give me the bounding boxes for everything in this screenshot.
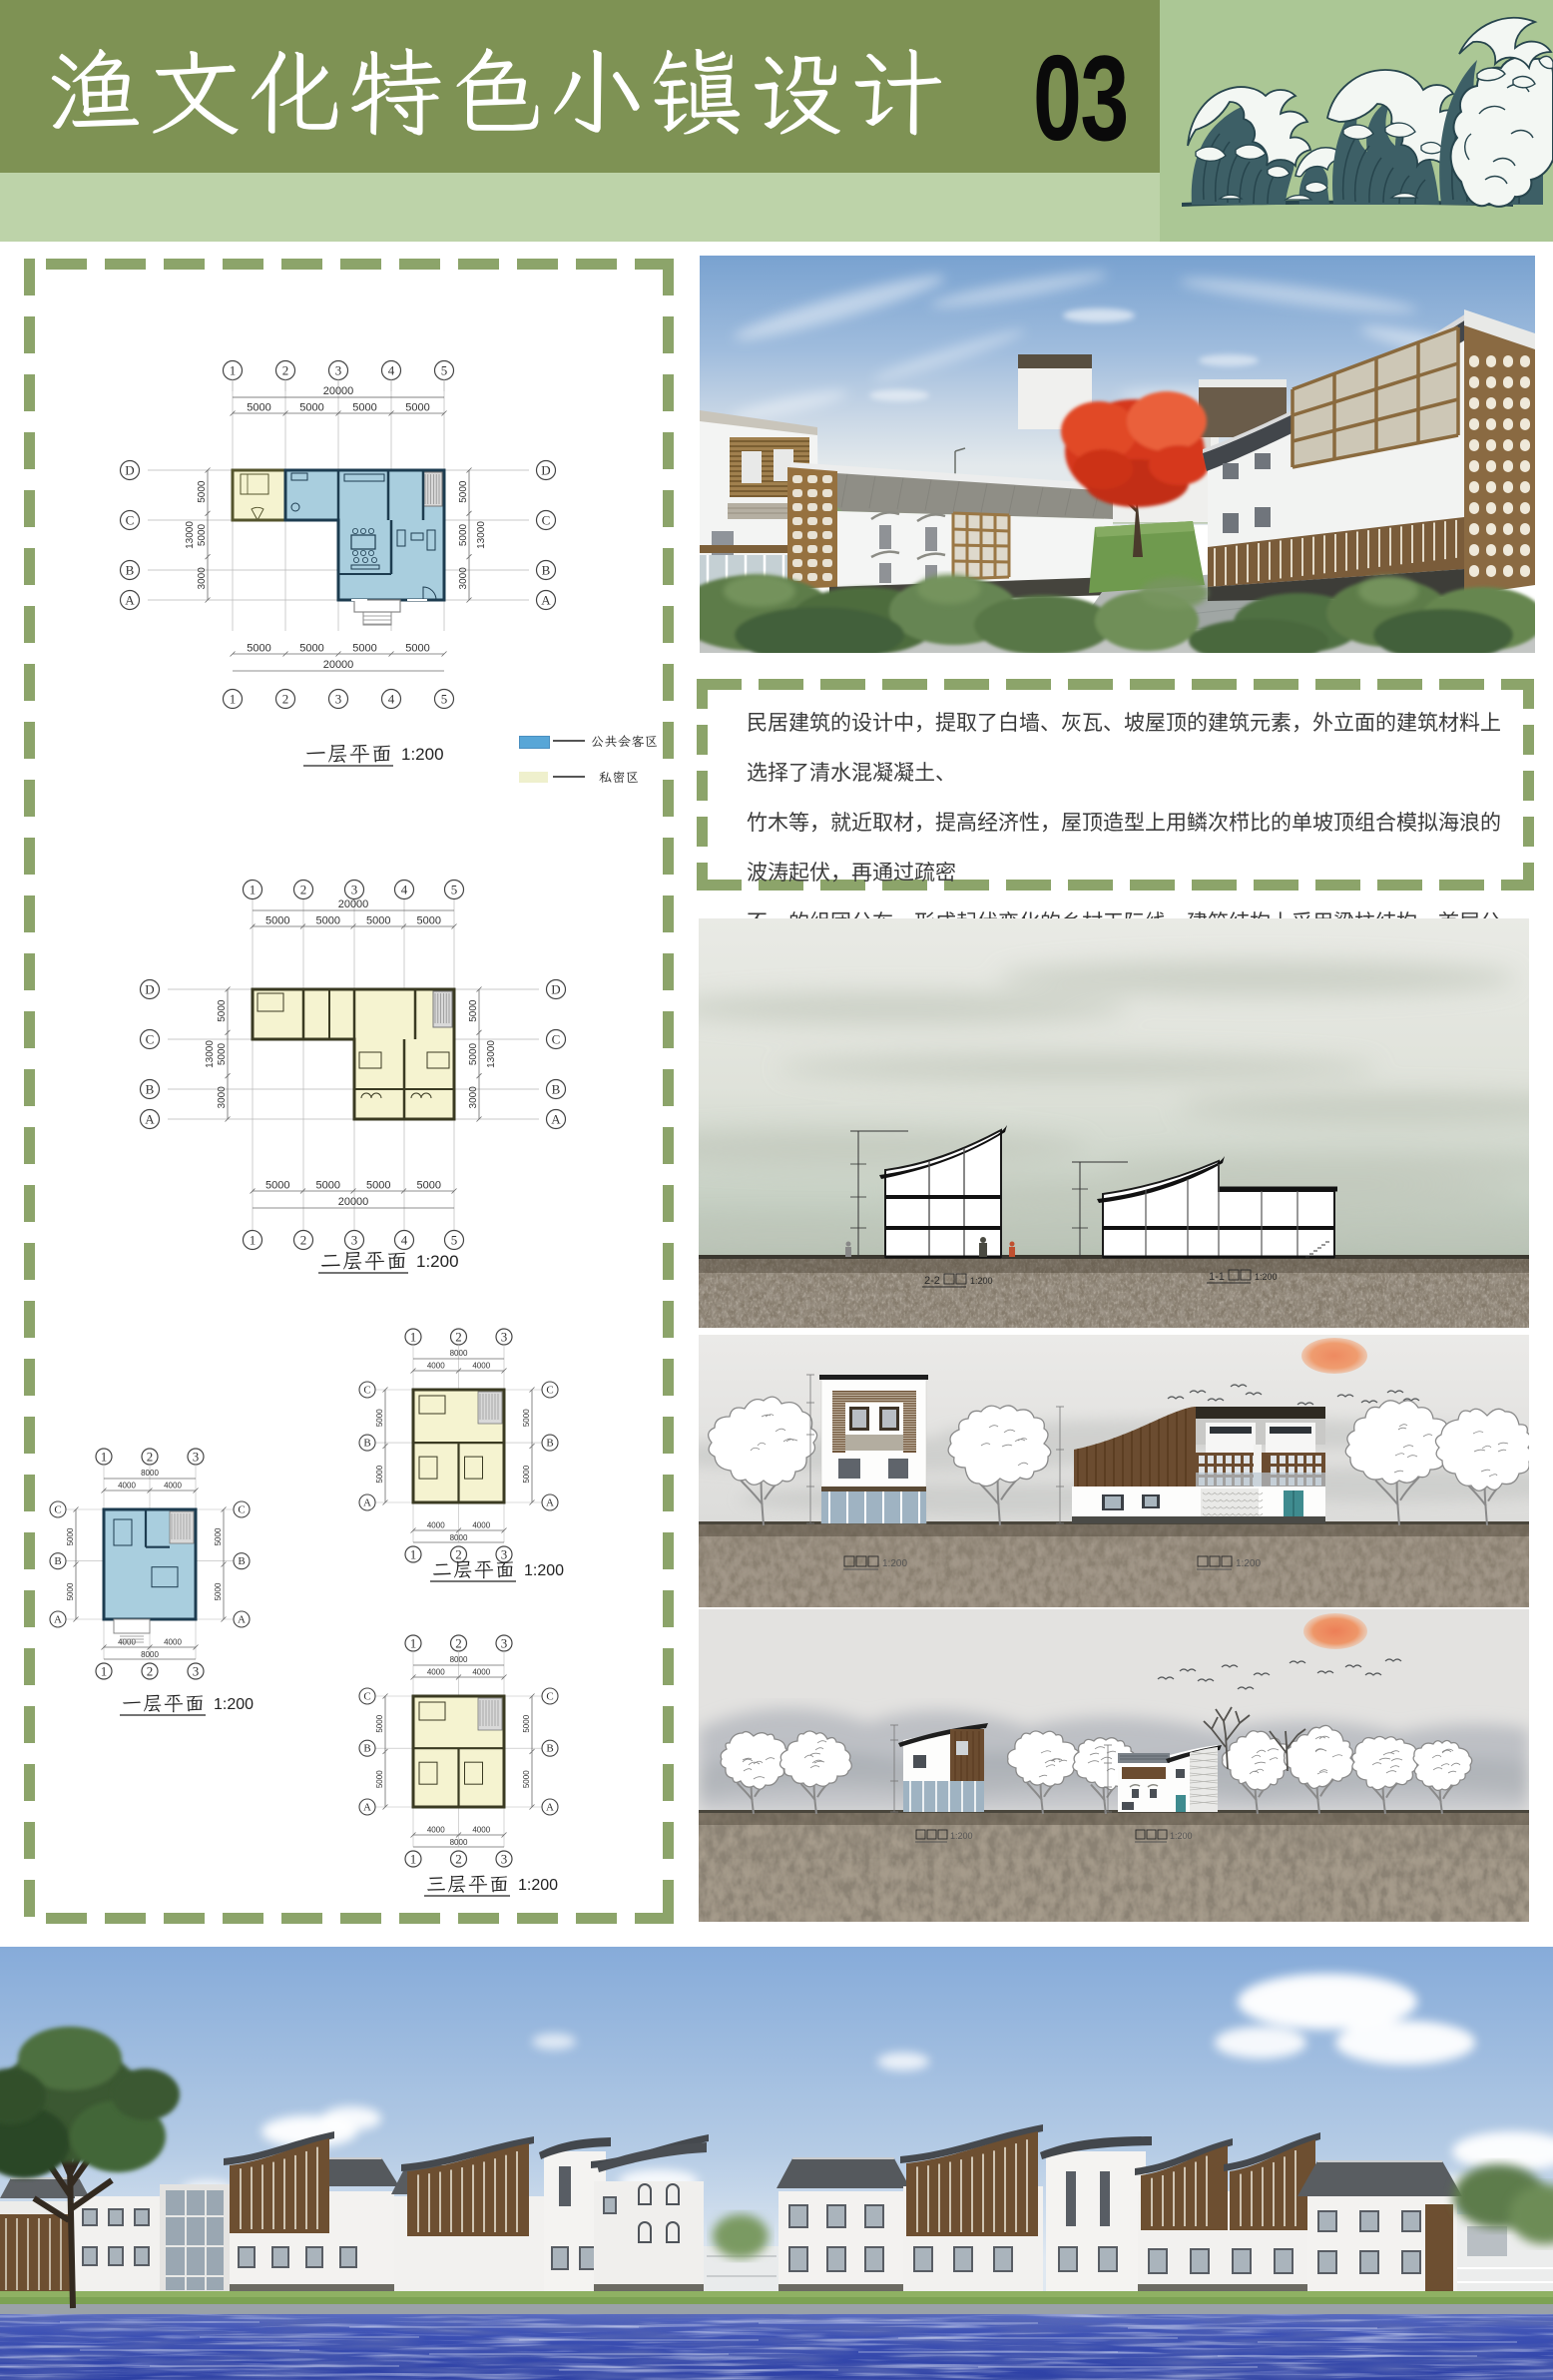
svg-text:1: 1 — [230, 692, 237, 707]
svg-text:C: C — [546, 1691, 553, 1703]
svg-text:4000: 4000 — [472, 1521, 490, 1530]
svg-text:1: 1 — [410, 1852, 417, 1867]
svg-text:5000: 5000 — [468, 999, 479, 1022]
svg-text:A: A — [551, 1112, 561, 1127]
svg-text:3: 3 — [193, 1450, 200, 1465]
svg-text:2: 2 — [455, 1330, 462, 1345]
svg-text:20000: 20000 — [323, 659, 354, 671]
svg-text:3000: 3000 — [458, 567, 469, 590]
svg-text:D: D — [125, 463, 134, 478]
svg-text:B: B — [126, 563, 135, 578]
svg-text:2: 2 — [455, 1547, 462, 1562]
svg-text:4000: 4000 — [164, 1638, 182, 1647]
svg-text:A: A — [238, 1614, 246, 1626]
svg-text:A: A — [125, 593, 135, 608]
svg-text:A: A — [145, 1112, 155, 1127]
svg-text:5000: 5000 — [247, 402, 270, 414]
svg-text:C: C — [552, 1032, 561, 1047]
svg-text:3: 3 — [335, 692, 342, 707]
svg-text:13000: 13000 — [486, 1040, 497, 1068]
svg-text:8000: 8000 — [450, 1349, 468, 1358]
svg-text:2: 2 — [282, 363, 289, 378]
svg-text:5000: 5000 — [375, 1770, 384, 1788]
svg-text:5000: 5000 — [352, 402, 376, 414]
svg-text:4: 4 — [388, 363, 395, 378]
svg-text:1: 1 — [410, 1547, 417, 1562]
svg-text:B: B — [146, 1082, 155, 1097]
svg-text:1:200: 1:200 — [1236, 1558, 1261, 1569]
svg-text:D: D — [541, 463, 550, 478]
svg-text:B: B — [546, 1438, 553, 1450]
svg-text:5: 5 — [441, 363, 448, 378]
svg-text:3: 3 — [501, 1636, 508, 1651]
svg-text:5000: 5000 — [375, 1714, 384, 1732]
svg-text:5000: 5000 — [197, 523, 208, 546]
svg-text:4000: 4000 — [472, 1826, 490, 1835]
svg-text:B: B — [363, 1743, 370, 1755]
svg-text:B: B — [546, 1743, 553, 1755]
svg-text:1:200: 1:200 — [524, 1562, 564, 1579]
svg-text:1: 1 — [101, 1450, 108, 1465]
svg-text:1: 1 — [101, 1664, 108, 1679]
svg-text:4000: 4000 — [427, 1826, 445, 1835]
svg-text:20000: 20000 — [338, 1196, 369, 1208]
svg-text:4: 4 — [401, 883, 408, 897]
svg-text:2-2: 2-2 — [924, 1275, 940, 1287]
svg-text:3000: 3000 — [197, 567, 208, 590]
svg-text:8000: 8000 — [450, 1655, 468, 1664]
svg-text:8000: 8000 — [450, 1838, 468, 1847]
svg-text:A: A — [541, 593, 551, 608]
svg-text:13000: 13000 — [185, 521, 196, 549]
svg-text:1:200: 1:200 — [214, 1696, 254, 1713]
svg-text:1:200: 1:200 — [970, 1276, 993, 1286]
svg-text:5000: 5000 — [522, 1409, 531, 1427]
svg-text:5000: 5000 — [522, 1465, 531, 1483]
svg-text:3: 3 — [335, 363, 342, 378]
svg-text:4000: 4000 — [118, 1482, 136, 1490]
svg-text:4000: 4000 — [427, 1668, 445, 1677]
svg-text:C: C — [146, 1032, 155, 1047]
svg-text:C: C — [126, 513, 135, 528]
svg-text:5000: 5000 — [458, 480, 469, 503]
svg-text:5000: 5000 — [316, 1180, 340, 1192]
svg-text:4000: 4000 — [427, 1521, 445, 1530]
svg-text:3: 3 — [193, 1664, 200, 1679]
svg-text:5: 5 — [441, 692, 448, 707]
svg-text:3: 3 — [351, 1233, 358, 1248]
svg-text:2: 2 — [455, 1852, 462, 1867]
svg-text:2: 2 — [300, 1233, 307, 1248]
svg-text:1:200: 1:200 — [950, 1831, 973, 1841]
svg-text:1: 1 — [410, 1330, 417, 1345]
svg-text:5000: 5000 — [468, 1042, 479, 1065]
svg-text:5000: 5000 — [299, 402, 323, 414]
svg-text:B: B — [552, 1082, 561, 1097]
svg-text:1:200: 1:200 — [416, 1252, 459, 1271]
svg-text:C: C — [54, 1504, 61, 1516]
svg-text:5000: 5000 — [352, 643, 376, 655]
svg-text:13000: 13000 — [205, 1040, 216, 1068]
svg-text:5000: 5000 — [458, 523, 469, 546]
svg-text:B: B — [238, 1555, 245, 1567]
svg-text:5000: 5000 — [217, 1042, 228, 1065]
svg-text:2: 2 — [147, 1664, 154, 1679]
svg-text:3: 3 — [501, 1547, 508, 1562]
svg-text:D: D — [551, 982, 560, 997]
svg-text:5000: 5000 — [217, 999, 228, 1022]
svg-text:2: 2 — [282, 692, 289, 707]
svg-text:5: 5 — [451, 1233, 458, 1248]
svg-text:4: 4 — [388, 692, 395, 707]
svg-text:8000: 8000 — [141, 1650, 159, 1659]
svg-text:A: A — [54, 1614, 62, 1626]
svg-text:A: A — [363, 1497, 371, 1509]
svg-text:3: 3 — [501, 1852, 508, 1867]
svg-text:20000: 20000 — [338, 898, 369, 910]
svg-text:20000: 20000 — [323, 385, 354, 397]
svg-text:1:200: 1:200 — [1170, 1831, 1193, 1841]
svg-text:5000: 5000 — [417, 915, 441, 927]
svg-text:5000: 5000 — [375, 1465, 384, 1483]
svg-text:5000: 5000 — [265, 1180, 289, 1192]
svg-text:5000: 5000 — [66, 1582, 75, 1600]
svg-text:8000: 8000 — [450, 1533, 468, 1542]
svg-text:C: C — [542, 513, 551, 528]
svg-text:5: 5 — [451, 883, 458, 897]
svg-text:3: 3 — [351, 883, 358, 897]
svg-text:3000: 3000 — [468, 1086, 479, 1109]
svg-text:1: 1 — [410, 1636, 417, 1651]
svg-text:5000: 5000 — [375, 1409, 384, 1427]
svg-text:5000: 5000 — [417, 1180, 441, 1192]
svg-text:A: A — [546, 1802, 554, 1814]
svg-text:5000: 5000 — [405, 643, 429, 655]
svg-text:A: A — [546, 1497, 554, 1509]
svg-text:1-1: 1-1 — [1209, 1271, 1225, 1283]
svg-text:5000: 5000 — [366, 1180, 390, 1192]
svg-text:5000: 5000 — [66, 1527, 75, 1545]
svg-text:5000: 5000 — [316, 915, 340, 927]
svg-text:1:200: 1:200 — [518, 1877, 558, 1894]
svg-text:5000: 5000 — [197, 480, 208, 503]
svg-text:13000: 13000 — [476, 521, 487, 549]
svg-text:5000: 5000 — [522, 1714, 531, 1732]
svg-text:5000: 5000 — [405, 402, 429, 414]
svg-text:5000: 5000 — [299, 643, 323, 655]
svg-text:C: C — [546, 1385, 553, 1397]
svg-text:D: D — [145, 982, 154, 997]
svg-text:3000: 3000 — [217, 1086, 228, 1109]
svg-text:1: 1 — [250, 1233, 257, 1248]
svg-text:1: 1 — [230, 363, 237, 378]
svg-text:4000: 4000 — [164, 1482, 182, 1490]
svg-text:2: 2 — [147, 1450, 154, 1465]
svg-text:5000: 5000 — [265, 915, 289, 927]
svg-text:A: A — [363, 1802, 371, 1814]
svg-text:1:200: 1:200 — [1255, 1272, 1278, 1282]
svg-text:B: B — [54, 1555, 61, 1567]
svg-text:4000: 4000 — [472, 1668, 490, 1677]
svg-text:2: 2 — [455, 1636, 462, 1651]
svg-text:1:200: 1:200 — [401, 745, 444, 764]
svg-text:4000: 4000 — [472, 1362, 490, 1371]
svg-text:B: B — [542, 563, 551, 578]
svg-text:1:200: 1:200 — [882, 1558, 907, 1569]
svg-text:C: C — [363, 1691, 370, 1703]
svg-text:1: 1 — [250, 883, 257, 897]
svg-text:5000: 5000 — [214, 1582, 223, 1600]
svg-text:5000: 5000 — [366, 915, 390, 927]
svg-text:5000: 5000 — [522, 1770, 531, 1788]
svg-text:B: B — [363, 1438, 370, 1450]
svg-text:C: C — [363, 1385, 370, 1397]
svg-text:3: 3 — [501, 1330, 508, 1345]
svg-text:4000: 4000 — [427, 1362, 445, 1371]
svg-text:4: 4 — [401, 1233, 408, 1248]
svg-text:5000: 5000 — [247, 643, 270, 655]
svg-text:5000: 5000 — [214, 1527, 223, 1545]
svg-text:C: C — [238, 1504, 245, 1516]
svg-text:8000: 8000 — [141, 1469, 159, 1478]
svg-text:2: 2 — [300, 883, 307, 897]
